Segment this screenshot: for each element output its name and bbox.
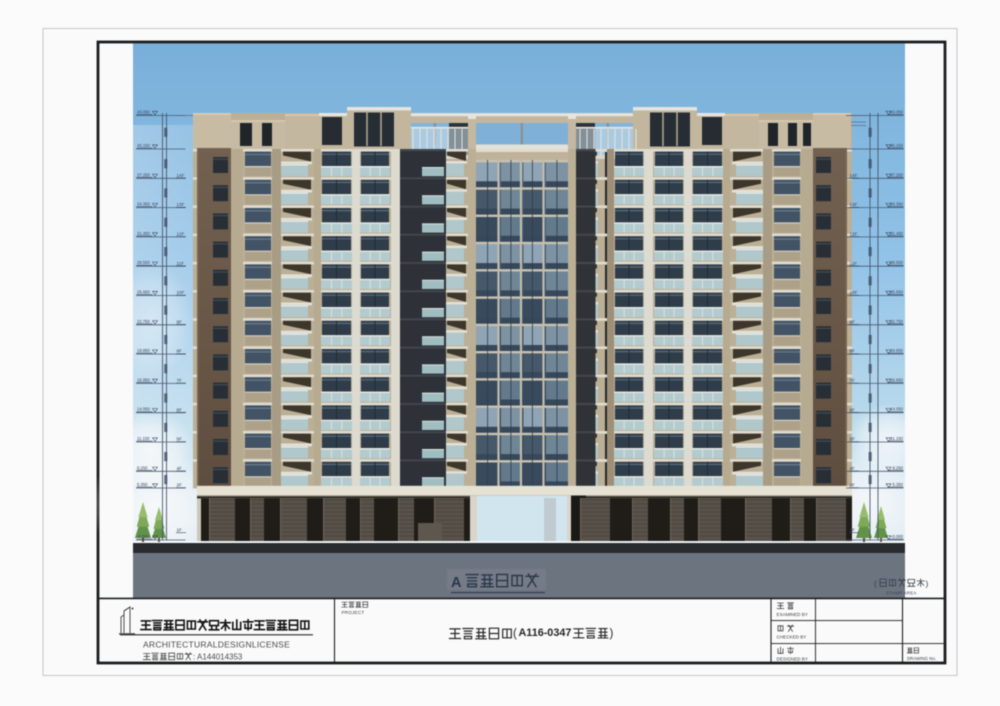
svg-text:1F: 1F xyxy=(850,528,856,533)
svg-text:37.250: 37.250 xyxy=(890,172,903,177)
svg-text:28.550: 28.550 xyxy=(137,260,150,265)
svg-text:11F: 11F xyxy=(177,261,185,266)
svg-text:5.350: 5.350 xyxy=(893,482,904,487)
svg-text:19.850: 19.850 xyxy=(137,348,150,353)
svg-text:8.250: 8.250 xyxy=(137,465,148,470)
svg-text:31.450: 31.450 xyxy=(137,231,150,236)
svg-text:4F: 4F xyxy=(850,466,856,471)
svg-text:1F: 1F xyxy=(177,528,183,533)
svg-text:16.950: 16.950 xyxy=(890,377,903,382)
svg-text:13F: 13F xyxy=(850,202,858,207)
svg-text:14F: 14F xyxy=(177,173,185,178)
svg-text:5F: 5F xyxy=(850,437,856,442)
svg-text:34.350: 34.350 xyxy=(890,202,903,207)
svg-text:ARCHITECTURALDESIGNLICENSE: ARCHITECTURALDESIGNLICENSE xyxy=(143,640,290,650)
svg-text:22.750: 22.750 xyxy=(137,319,150,324)
svg-text:: A144014353: : A144014353 xyxy=(193,652,243,661)
svg-text:25.650: 25.650 xyxy=(890,290,903,295)
svg-text:25.650: 25.650 xyxy=(137,290,150,295)
svg-text:6F: 6F xyxy=(850,407,856,412)
svg-text:A: A xyxy=(451,575,462,591)
svg-text:DRAWING No.: DRAWING No. xyxy=(907,656,936,661)
svg-text:-0.000: -0.000 xyxy=(891,534,904,539)
svg-text:(: ( xyxy=(874,579,877,589)
svg-text:12F: 12F xyxy=(850,232,858,237)
svg-text:7F: 7F xyxy=(177,378,183,383)
svg-text:7F: 7F xyxy=(850,378,856,383)
svg-text:CHECKED BY: CHECKED BY xyxy=(777,634,807,639)
svg-text:14F: 14F xyxy=(850,173,858,178)
svg-text:43.050: 43.050 xyxy=(137,110,150,115)
svg-text:22.750: 22.750 xyxy=(890,319,903,324)
svg-text:6F: 6F xyxy=(177,407,183,412)
svg-text:5.350: 5.350 xyxy=(137,482,148,487)
svg-text:): ) xyxy=(926,579,929,589)
svg-text:5F: 5F xyxy=(177,437,183,442)
svg-text:43.050: 43.050 xyxy=(890,110,903,115)
svg-text:8F: 8F xyxy=(850,349,856,354)
svg-text:DESIGNED BY: DESIGNED BY xyxy=(777,656,808,661)
svg-text:40.150: 40.150 xyxy=(137,143,150,148)
svg-text:16.950: 16.950 xyxy=(137,377,150,382)
svg-text:10F: 10F xyxy=(850,290,858,295)
svg-text:11F: 11F xyxy=(850,261,858,266)
svg-text:19.850: 19.850 xyxy=(890,348,903,353)
svg-text:13F: 13F xyxy=(177,202,185,207)
svg-text:8.250: 8.250 xyxy=(893,465,904,470)
svg-text:11.150: 11.150 xyxy=(891,436,904,441)
svg-text:34.350: 34.350 xyxy=(137,202,150,207)
svg-text:40.150: 40.150 xyxy=(890,143,903,148)
svg-text:STAMP AREA: STAMP AREA xyxy=(886,591,917,596)
svg-text:2F: 2F xyxy=(850,483,856,488)
svg-text:10F: 10F xyxy=(177,290,185,295)
svg-text:): ) xyxy=(610,628,614,640)
svg-text:-0.000: -0.000 xyxy=(137,534,150,539)
svg-text:9F: 9F xyxy=(850,319,856,324)
svg-text:PROJECT: PROJECT xyxy=(342,610,365,615)
svg-text:EXAMINED BY: EXAMINED BY xyxy=(777,612,808,617)
svg-text:4F: 4F xyxy=(177,466,183,471)
svg-text:14.050: 14.050 xyxy=(137,407,150,412)
svg-text:31.450: 31.450 xyxy=(890,231,903,236)
svg-text:8F: 8F xyxy=(177,349,183,354)
svg-text:12F: 12F xyxy=(177,232,185,237)
svg-text:2F: 2F xyxy=(177,483,183,488)
svg-text:37.250: 37.250 xyxy=(137,172,150,177)
svg-text:(: ( xyxy=(513,628,517,640)
svg-text:A116-0347: A116-0347 xyxy=(519,627,572,639)
svg-text:9F: 9F xyxy=(177,319,183,324)
svg-text:14.050: 14.050 xyxy=(890,407,903,412)
svg-text:28.550: 28.550 xyxy=(890,260,903,265)
svg-text:11.150: 11.150 xyxy=(137,436,150,441)
